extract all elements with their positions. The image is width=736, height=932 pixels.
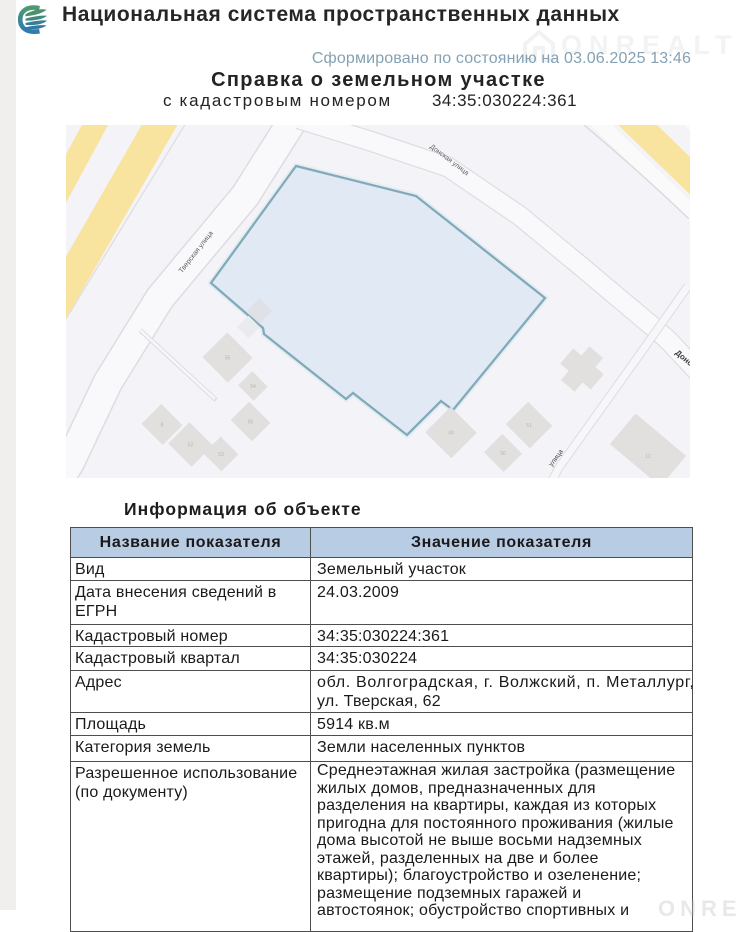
svg-text:12: 12	[645, 454, 651, 460]
svg-text:52: 52	[188, 443, 194, 449]
svg-text:51: 51	[526, 423, 532, 429]
svg-text:55: 55	[225, 356, 231, 362]
svg-text:54: 54	[250, 384, 256, 390]
svg-text:50: 50	[500, 451, 506, 457]
svg-text:56: 56	[248, 420, 254, 426]
svg-text:53: 53	[218, 452, 224, 458]
svg-text:8: 8	[161, 423, 164, 429]
svg-text:49: 49	[448, 431, 454, 437]
